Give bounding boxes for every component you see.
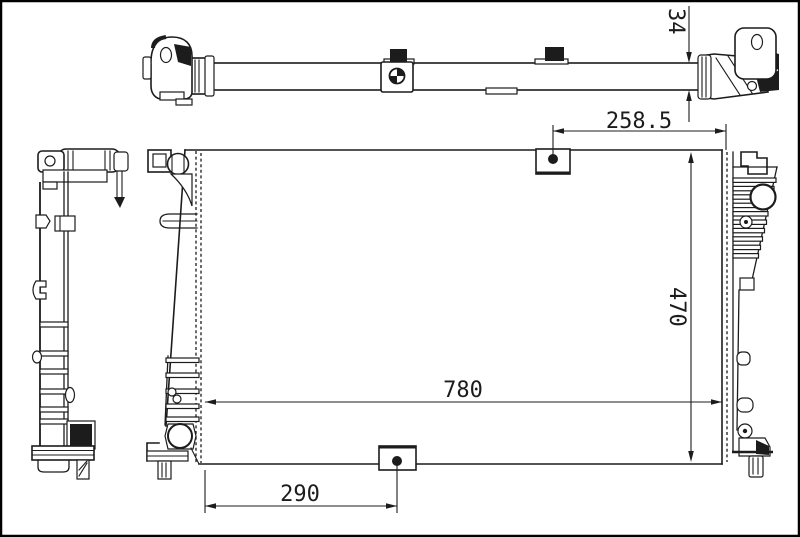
- arrowhead-right: [715, 128, 726, 134]
- filler-neck: [148, 150, 192, 206]
- arrowhead-up: [686, 90, 692, 101]
- top-right-clip: [741, 152, 767, 174]
- arrowhead-down: [686, 52, 692, 63]
- arrowhead-right: [711, 399, 722, 405]
- radiator-top-view: [143, 28, 779, 105]
- filler-cap: [168, 154, 189, 175]
- top-view-tube: [206, 63, 713, 90]
- dim-value-780: 780: [443, 378, 483, 403]
- side-clip-lower: [33, 281, 46, 299]
- right-port: [751, 185, 776, 210]
- drain-plug: [732, 424, 773, 477]
- left-side-tab: [160, 214, 197, 228]
- top-tab-hole: [548, 154, 558, 164]
- dim-value-470: 470: [664, 287, 689, 327]
- right-tank: [732, 152, 777, 477]
- dimension-290: 290: [205, 464, 397, 513]
- drawing-page: 34: [0, 0, 800, 537]
- rubber-mount-block: [70, 424, 92, 447]
- technical-drawing-canvas: 34: [0, 0, 800, 537]
- bottom-left-tank: [147, 356, 199, 479]
- mounting-pin-right: [545, 47, 564, 61]
- top-view-right-fitting: [698, 28, 779, 99]
- left-fitting-hole: [161, 48, 172, 63]
- left-foot-pin: [158, 461, 171, 479]
- radiator-side-view: [32, 149, 128, 479]
- arrowhead-up: [688, 152, 694, 163]
- side-clip-upper: [36, 215, 50, 228]
- right-fitting-hole: [752, 35, 763, 50]
- left-port: [168, 424, 192, 448]
- dimension-780: 780: [205, 378, 722, 405]
- dim-value-290: 290: [280, 482, 320, 507]
- mounting-pin-left: [390, 49, 407, 62]
- arrowhead-left: [205, 399, 216, 405]
- arrowhead-left: [205, 503, 216, 509]
- dimension-470: 470: [664, 152, 694, 462]
- arrowhead-left: [553, 128, 564, 134]
- front-left-edge: [166, 150, 185, 426]
- arrowhead-down: [688, 451, 694, 462]
- dim-value-258-5: 258.5: [606, 109, 672, 134]
- top-view-left-fitting: [143, 37, 214, 105]
- dim-value-34: 34: [663, 8, 688, 35]
- arrowhead-right: [386, 503, 397, 509]
- dimension-258-5: 258.5: [553, 109, 726, 155]
- side-view-inlet-fitting: [38, 149, 128, 208]
